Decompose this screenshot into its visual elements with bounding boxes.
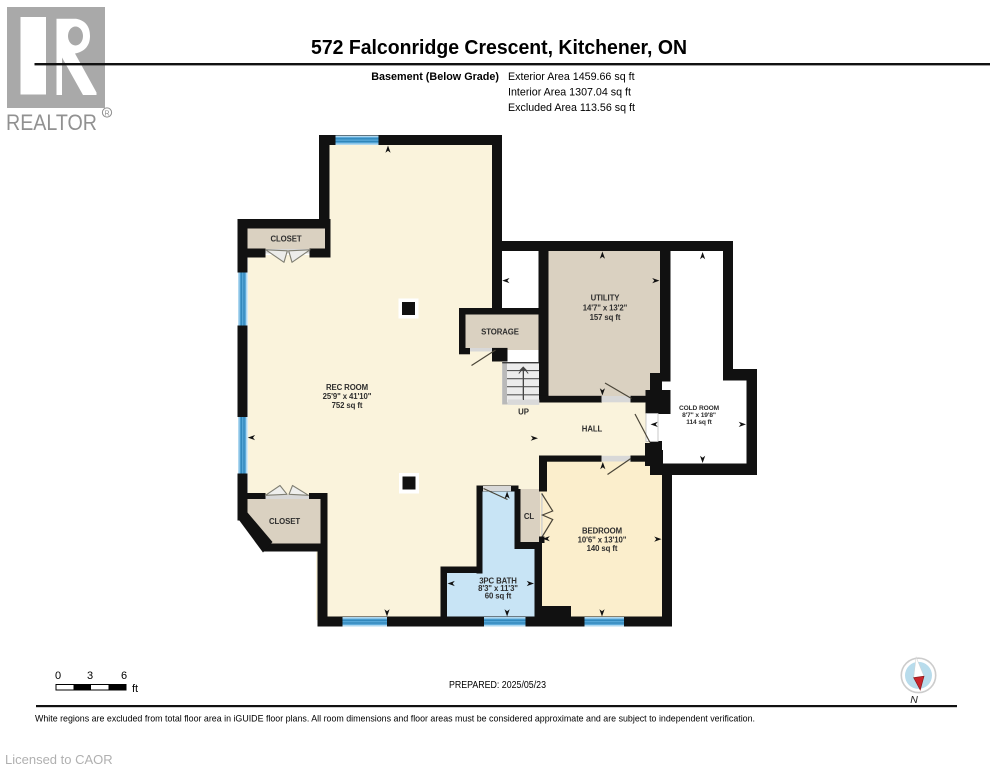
- svg-text:752 sq ft: 752 sq ft: [332, 401, 363, 410]
- svg-text:REC ROOM: REC ROOM: [326, 383, 368, 392]
- svg-text:REALTOR: REALTOR: [6, 110, 97, 135]
- svg-text:STORAGE: STORAGE: [481, 328, 519, 337]
- svg-text:CLOSET: CLOSET: [269, 517, 300, 526]
- svg-text:157 sq ft: 157 sq ft: [590, 313, 621, 322]
- svg-text:HALL: HALL: [582, 425, 603, 434]
- svg-text:Interior Area 1307.04 sq ft: Interior Area 1307.04 sq ft: [508, 87, 631, 99]
- svg-text:CL: CL: [524, 512, 535, 521]
- svg-text:Excluded Area 113.56 sq ft: Excluded Area 113.56 sq ft: [508, 102, 635, 114]
- svg-text:25'9" x 41'10": 25'9" x 41'10": [323, 392, 372, 401]
- svg-text:Exterior Area 1459.66 sq ft: Exterior Area 1459.66 sq ft: [508, 71, 635, 83]
- svg-text:0: 0: [55, 670, 61, 682]
- svg-text:Licensed to CAOR: Licensed to CAOR: [5, 752, 113, 767]
- svg-text:White regions are excluded fro: White regions are excluded from total fl…: [35, 714, 755, 724]
- svg-text:ft: ft: [132, 683, 138, 695]
- svg-text:6: 6: [121, 670, 127, 682]
- svg-text:140 sq ft: 140 sq ft: [587, 544, 618, 553]
- svg-text:PREPARED: 2025/05/23: PREPARED: 2025/05/23: [449, 680, 546, 691]
- svg-text:CLOSET: CLOSET: [270, 235, 301, 244]
- svg-text:3: 3: [87, 670, 93, 682]
- svg-text:Basement (Below Grade): Basement (Below Grade): [371, 71, 499, 83]
- svg-text:8'7" x 19'8": 8'7" x 19'8": [682, 412, 716, 419]
- svg-text:COLD ROOM: COLD ROOM: [679, 405, 720, 412]
- svg-text:UP: UP: [518, 408, 529, 417]
- svg-text:UTILITY: UTILITY: [591, 293, 621, 302]
- svg-text:R: R: [104, 111, 109, 118]
- svg-text:14'7" x 13'2": 14'7" x 13'2": [583, 303, 628, 312]
- svg-text:114 sq ft: 114 sq ft: [686, 419, 712, 426]
- svg-text:572 Falconridge Crescent, Kitc: 572 Falconridge Crescent, Kitchener, ON: [311, 37, 687, 59]
- svg-text:N: N: [910, 694, 918, 706]
- svg-text:BEDROOM: BEDROOM: [582, 526, 622, 535]
- svg-text:60 sq ft: 60 sq ft: [485, 591, 512, 600]
